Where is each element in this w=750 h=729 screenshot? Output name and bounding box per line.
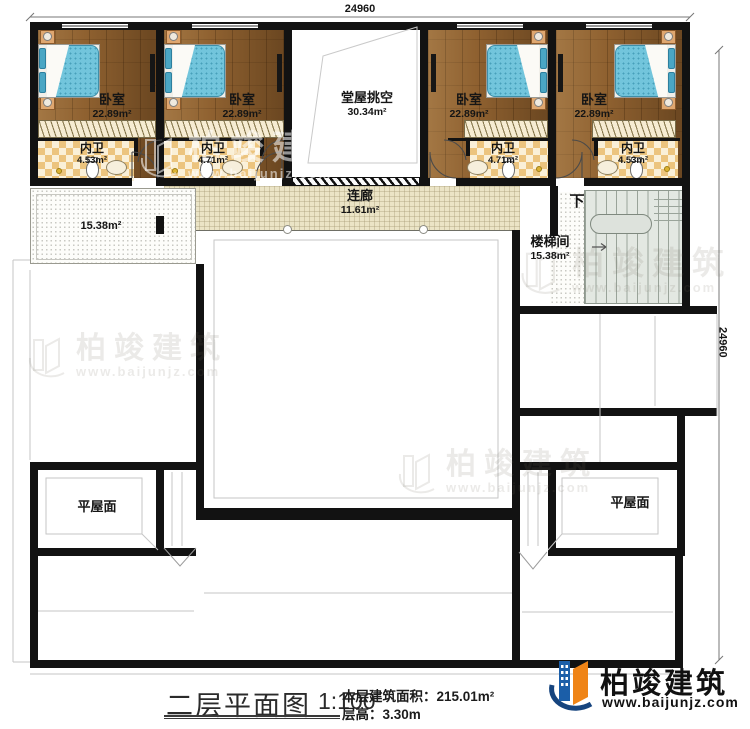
lamp-icon bbox=[169, 32, 178, 41]
watermark-site: www.baijunjz.com bbox=[446, 480, 598, 495]
floor-plan: 柏竣建筑 www.baijunjz.com 柏竣建筑 www.baijunjz.… bbox=[0, 0, 750, 729]
wall bbox=[520, 462, 685, 470]
floor-height-label: 层高： bbox=[342, 707, 383, 722]
room-label-corridor: 连廊 11.61m² bbox=[325, 189, 395, 216]
wall bbox=[548, 548, 685, 556]
wall bbox=[548, 470, 556, 548]
wall bbox=[30, 548, 196, 556]
dimension-right-label: 24960 bbox=[716, 320, 729, 364]
wall bbox=[420, 178, 430, 186]
brand-logo-icon bbox=[546, 655, 594, 713]
room-label-bedroom1: 卧室 22.89m² bbox=[77, 93, 147, 120]
wall bbox=[675, 556, 683, 668]
wall bbox=[420, 22, 428, 186]
room-label-bath1: 内卫 4.53m² bbox=[62, 142, 122, 167]
dimension-top-label: 24960 bbox=[330, 3, 390, 16]
wall bbox=[30, 22, 38, 186]
column-icon bbox=[419, 225, 428, 234]
tv-icon bbox=[277, 54, 282, 92]
headboard-cushion bbox=[39, 48, 46, 69]
partition-wall bbox=[260, 141, 264, 156]
floor-drain-icon bbox=[56, 168, 62, 174]
floor-area-label: 本层建筑面积： bbox=[342, 689, 437, 704]
lamp-icon bbox=[43, 32, 52, 41]
watermark-brand: 柏竣建筑 bbox=[76, 333, 228, 365]
headboard-cushion bbox=[668, 72, 675, 93]
wall bbox=[284, 22, 292, 186]
stair-upper-flight bbox=[654, 199, 682, 225]
lamp-icon bbox=[43, 98, 52, 107]
lamp-icon bbox=[664, 98, 673, 107]
brand-logo-site: www.baijunjz.com bbox=[602, 694, 739, 710]
wardrobe bbox=[592, 120, 676, 138]
window-icon bbox=[457, 22, 523, 30]
headboard-cushion bbox=[165, 72, 172, 93]
stair-down-label: 下 bbox=[566, 193, 588, 210]
window-icon bbox=[192, 22, 258, 30]
brand-watermark-icon bbox=[26, 330, 68, 382]
flat-roof-right-label: 平屋面 bbox=[595, 496, 665, 511]
wall bbox=[548, 22, 556, 186]
wardrobe bbox=[164, 120, 284, 138]
wall bbox=[156, 216, 164, 234]
wall bbox=[156, 22, 164, 186]
lamp-icon bbox=[169, 98, 178, 107]
tv-icon bbox=[558, 54, 563, 92]
room-label-bath3: 内卫 4.71m² bbox=[473, 142, 533, 167]
tv-icon bbox=[431, 54, 436, 92]
terrace-area-label: 15.38m² bbox=[66, 220, 136, 233]
wall bbox=[456, 178, 556, 186]
floor-drain-icon bbox=[536, 166, 542, 172]
room-label-bedroom4: 卧室 22.89m² bbox=[559, 93, 629, 120]
room-label-bath2: 内卫 4.71m² bbox=[183, 142, 243, 167]
wall bbox=[196, 264, 204, 520]
room-label-stairwell: 楼梯间 15.38m² bbox=[515, 235, 585, 262]
wardrobe bbox=[464, 120, 548, 138]
headboard-cushion bbox=[165, 48, 172, 69]
wall bbox=[30, 462, 38, 668]
title-underline bbox=[164, 715, 340, 719]
floor-area-line: 本层建筑面积：215.01m² bbox=[342, 685, 494, 705]
window-icon bbox=[586, 22, 652, 30]
wall bbox=[158, 178, 256, 186]
room-label-bedroom2: 卧室 22.89m² bbox=[207, 93, 277, 120]
headboard-cushion bbox=[39, 72, 46, 93]
headboard-cushion bbox=[540, 72, 547, 93]
wall bbox=[550, 186, 558, 236]
wall bbox=[512, 230, 520, 668]
partition-wall bbox=[466, 141, 470, 156]
room-label-hall-void: 堂屋挑空 30.34m² bbox=[327, 91, 407, 118]
wall bbox=[677, 416, 685, 556]
floor-drain-icon bbox=[172, 168, 178, 174]
brand-watermark-icon bbox=[396, 446, 438, 498]
wall bbox=[196, 508, 520, 520]
room-label-bedroom3: 卧室 22.89m² bbox=[434, 93, 504, 120]
wardrobe bbox=[38, 120, 156, 138]
tv-icon bbox=[150, 54, 155, 92]
column-icon bbox=[283, 225, 292, 234]
wall bbox=[682, 22, 690, 314]
lamp-icon bbox=[534, 32, 543, 41]
partition-wall bbox=[134, 141, 138, 156]
lamp-icon bbox=[534, 98, 543, 107]
wall bbox=[282, 178, 292, 186]
room-label-bath4: 内卫 4.53m² bbox=[603, 142, 663, 167]
headboard-cushion bbox=[668, 48, 675, 69]
wall bbox=[30, 462, 196, 470]
wall bbox=[156, 470, 164, 556]
floor-height-value: 3.30m bbox=[383, 707, 421, 722]
window-icon bbox=[62, 22, 128, 30]
partition-wall bbox=[594, 141, 598, 156]
wall bbox=[512, 306, 717, 314]
wall bbox=[38, 178, 132, 186]
floor-area-value: 215.01m² bbox=[437, 689, 495, 704]
floor-drain-icon bbox=[664, 166, 670, 172]
watermark: 柏竣建筑 www.baijunjz.com bbox=[396, 446, 598, 498]
wall bbox=[584, 178, 690, 186]
stair-handrail bbox=[590, 214, 652, 234]
wall bbox=[512, 408, 717, 416]
lamp-icon bbox=[664, 32, 673, 41]
headboard-cushion bbox=[540, 48, 547, 69]
floor-height-line: 层高：3.30m bbox=[342, 703, 421, 723]
hall-railing bbox=[292, 177, 420, 186]
watermark-site: www.baijunjz.com bbox=[76, 364, 228, 379]
flat-roof-left-label: 平屋面 bbox=[62, 500, 132, 515]
